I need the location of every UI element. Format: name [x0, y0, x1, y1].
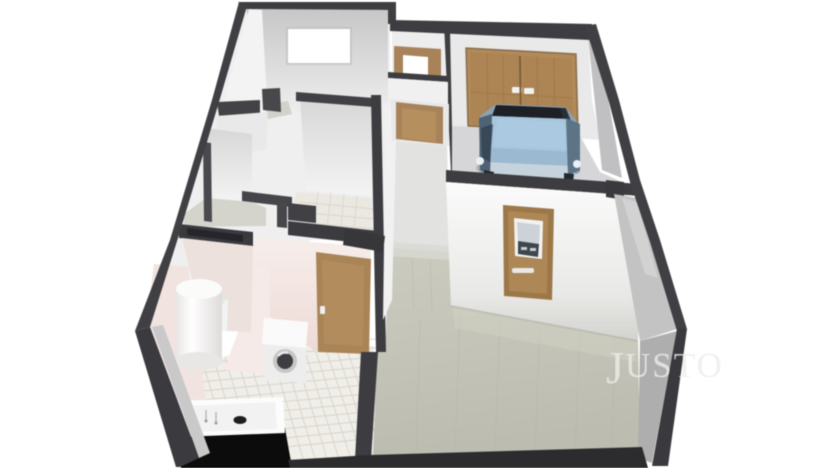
svg-text:J: J — [606, 342, 624, 393]
svg-text:USTO: USTO — [625, 346, 724, 385]
